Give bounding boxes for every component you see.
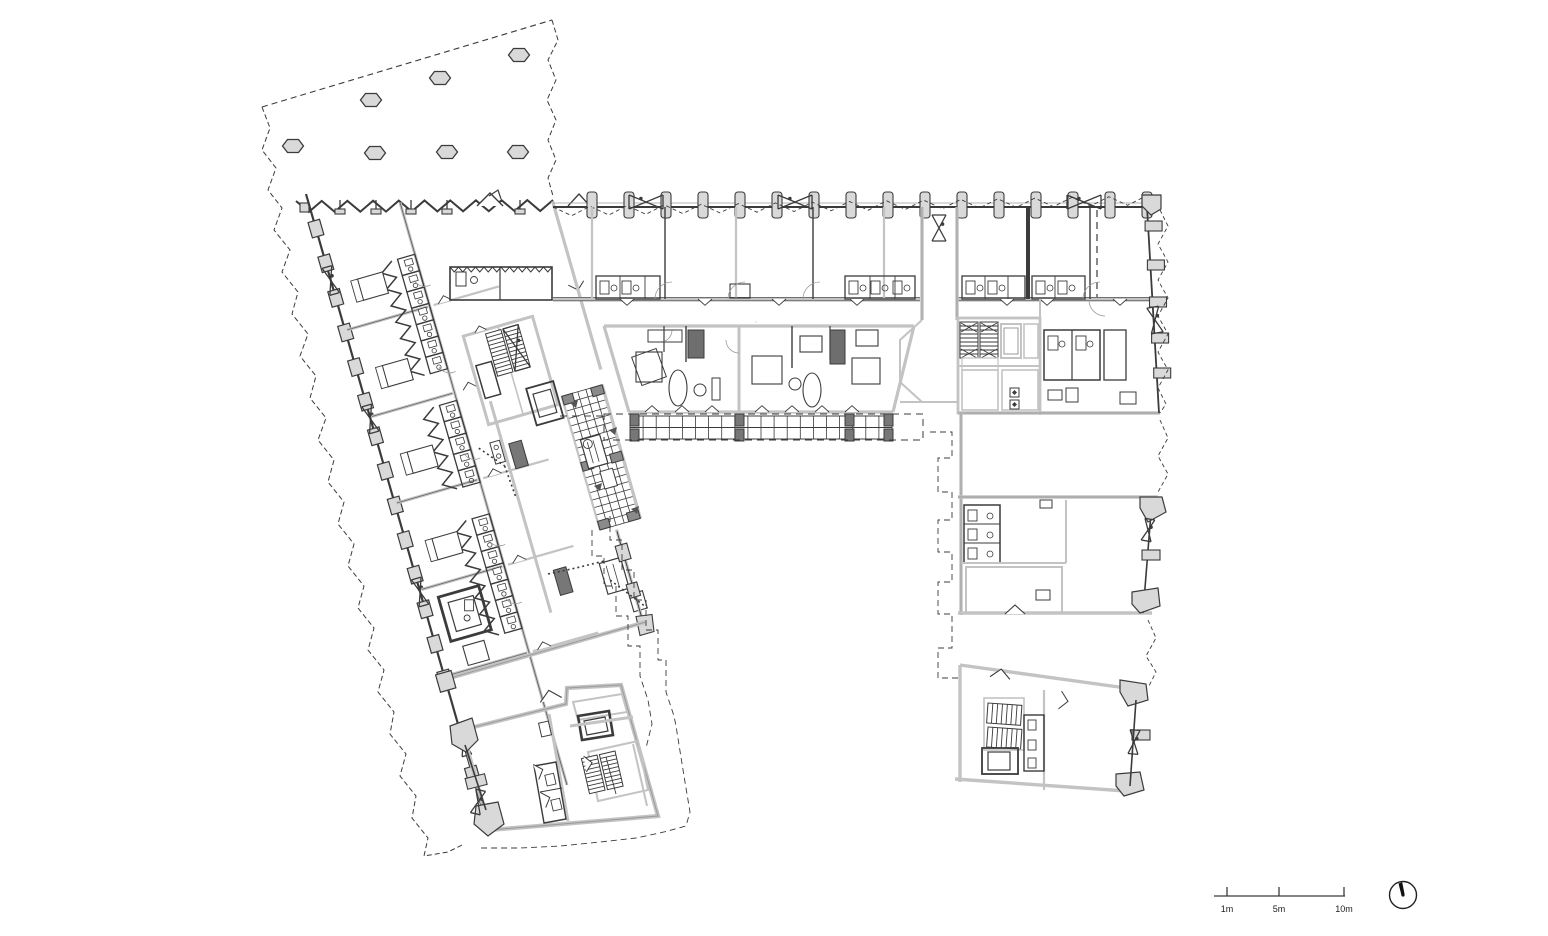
svg-text:5m: 5m — [1273, 904, 1286, 914]
svg-text:10m: 10m — [1335, 904, 1353, 914]
svg-text:1m: 1m — [1221, 904, 1234, 914]
